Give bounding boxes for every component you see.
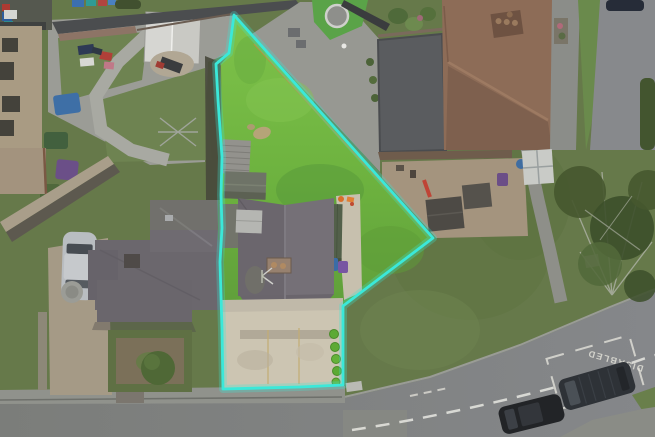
potted-plant xyxy=(371,94,379,102)
flat-roof-garage xyxy=(378,29,446,152)
garden-table-top xyxy=(66,286,79,299)
moss-tint xyxy=(245,266,265,294)
subject-driveway xyxy=(222,298,343,388)
red-bin xyxy=(2,4,10,11)
annex-roof xyxy=(0,148,46,194)
subject-shed-2 xyxy=(224,171,267,199)
patio-furniture xyxy=(288,28,300,37)
chimney-stack xyxy=(490,10,523,38)
bush-highlight xyxy=(144,354,160,370)
garden-toy xyxy=(86,0,96,6)
potted-plant xyxy=(366,58,374,66)
flowers xyxy=(417,15,423,21)
skylight xyxy=(165,215,173,221)
garden-toy xyxy=(98,0,107,6)
chimney xyxy=(267,258,291,273)
worn-patch xyxy=(247,124,255,130)
roof-east-pitch xyxy=(285,198,334,300)
grass-mottle xyxy=(360,290,480,370)
bush xyxy=(115,0,141,9)
moss-tint xyxy=(150,200,218,230)
bush xyxy=(141,351,175,385)
red-item xyxy=(350,202,354,206)
yard-shed-2 xyxy=(462,183,492,210)
potted-plant xyxy=(369,76,377,84)
planter-foliage xyxy=(559,33,566,40)
driveway-concrete xyxy=(222,310,343,388)
planter-flowers xyxy=(557,23,563,29)
white-box xyxy=(4,10,17,19)
parked-car-top xyxy=(606,0,644,11)
yard-clutter xyxy=(410,170,416,178)
ne-house-surroundings xyxy=(550,0,655,150)
egg-chair xyxy=(326,5,348,27)
small-dog xyxy=(342,44,347,49)
lawn-highlight xyxy=(246,78,314,122)
yard-shed-1 xyxy=(425,196,464,232)
garden-toy xyxy=(108,0,116,5)
garden-toy xyxy=(72,0,84,7)
patio-furniture xyxy=(296,40,306,48)
yard-clutter xyxy=(396,165,404,171)
asphalt-patch xyxy=(343,410,407,437)
purple-bin xyxy=(338,261,348,273)
brown-roof-house xyxy=(442,0,562,150)
purple-bin xyxy=(497,173,508,186)
planter xyxy=(554,18,568,44)
hedge-right-edge xyxy=(640,78,655,150)
wear-mark xyxy=(237,350,273,370)
cold-frames xyxy=(522,149,554,185)
chimney xyxy=(124,254,140,268)
bay-shadow xyxy=(240,330,334,339)
garden-wall xyxy=(38,312,47,390)
aerial-photo: DISABLED xyxy=(0,0,655,437)
aerial-photo-canvas: DISABLED xyxy=(0,0,655,437)
orange-item xyxy=(338,196,344,202)
dormer-flashing xyxy=(236,210,263,234)
roof-south-wing xyxy=(97,280,192,322)
wear-mark xyxy=(296,343,324,361)
